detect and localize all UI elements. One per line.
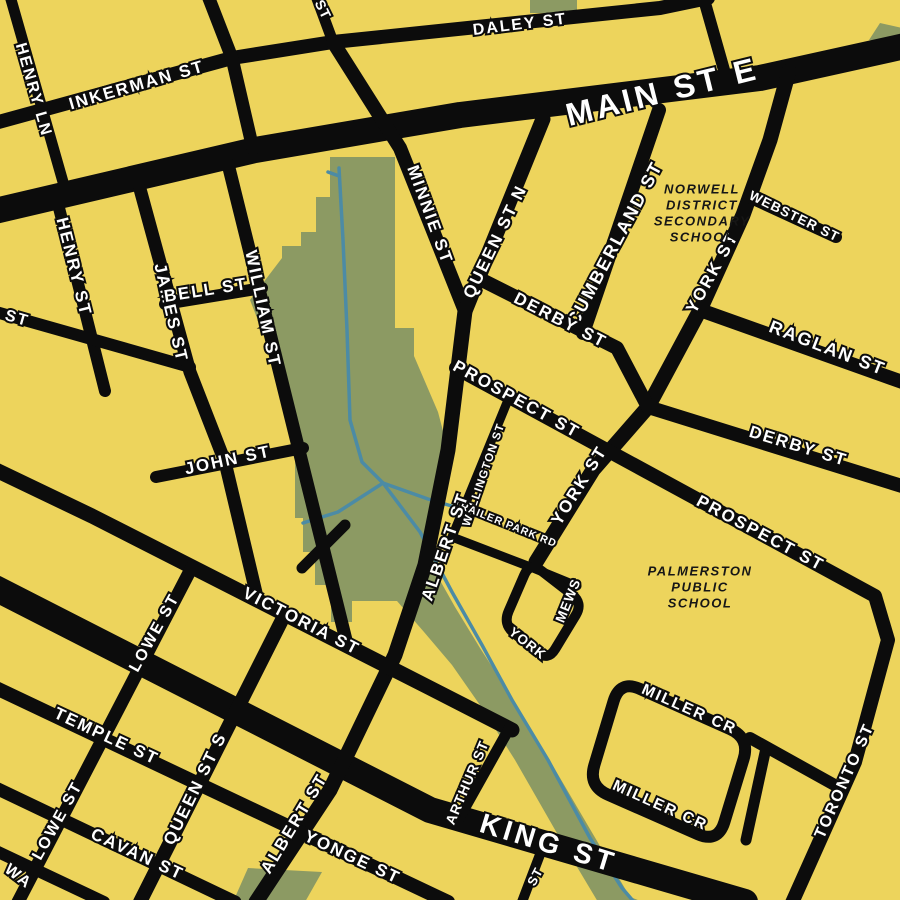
map-canvas: INKERMAN STDALEY STMAIN ST EHENRY LNSTHE… xyxy=(0,0,900,900)
poi-label-line: DISTRICT xyxy=(666,197,738,212)
poi-label-line: SCHOOL xyxy=(668,595,733,610)
poi-label-line: PUBLIC xyxy=(671,579,728,594)
map-poster: INKERMAN STDALEY STMAIN ST EHENRY LNSTHE… xyxy=(0,0,900,900)
poi-label-line: PALMERSTON xyxy=(648,563,753,578)
poi-label-line: SECONDARY xyxy=(654,213,750,228)
poi-label-line: SCHOOL xyxy=(670,229,735,244)
poi-label-line: NORWELL xyxy=(664,181,740,196)
